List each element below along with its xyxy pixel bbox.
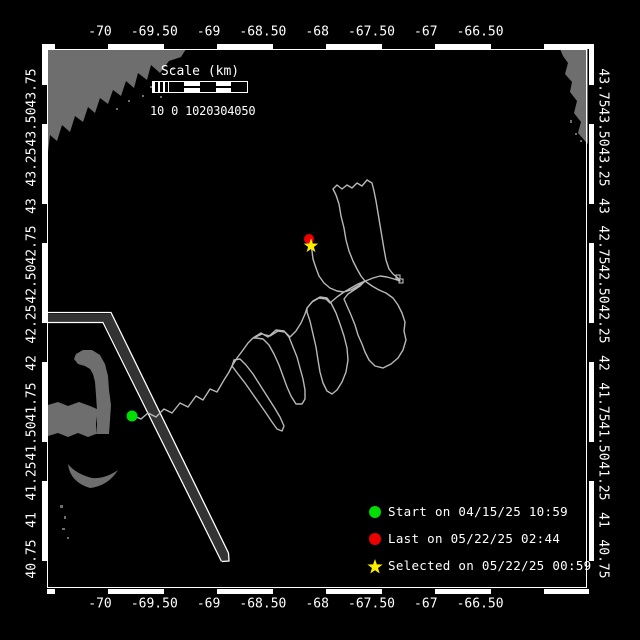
lat-tick-label-left: 43.75 <box>25 68 40 107</box>
legend-label-start: Start on 04/15/25 10:59 <box>388 504 568 519</box>
lon-tick-label-top: -68.50 <box>239 25 286 40</box>
lat-tick-label-right: 43.50 <box>596 108 611 147</box>
lat-tick-label-right: 41.50 <box>596 422 611 461</box>
lon-tick-label-top: -66.50 <box>457 25 504 40</box>
lat-tick-label-right: 43.25 <box>596 147 611 186</box>
lon-tick-label-top: -69.50 <box>131 25 178 40</box>
legend-label-last: Last on 05/22/25 02:44 <box>388 531 560 546</box>
lon-tick-label-bottom: -69.50 <box>131 597 178 612</box>
lat-tick-label-left: 41.25 <box>25 461 40 500</box>
lat-tick-label-right: 42.75 <box>596 226 611 265</box>
lat-tick-label-right: 43 <box>596 198 611 214</box>
legend-row-start: Start on 04/15/25 10:59 <box>362 498 591 525</box>
lat-tick-label-left: 41.75 <box>25 383 40 422</box>
scale-bar <box>152 81 248 93</box>
lat-tick-label-right: 41.25 <box>596 461 611 500</box>
lon-tick-label-bottom: -67 <box>414 597 437 612</box>
lat-tick-label-left: 41.50 <box>25 422 40 461</box>
lat-tick-label-left: 43 <box>25 198 40 214</box>
lat-tick-label-right: 42.50 <box>596 265 611 304</box>
land-cape-cod-shoulder <box>48 402 97 437</box>
south-island-specks <box>60 505 69 539</box>
lat-tick-label-left: 41 <box>25 512 40 528</box>
land-nova-scotia <box>560 49 588 144</box>
lon-tick-label-top: -69 <box>197 25 220 40</box>
scale-segment-hatch <box>153 82 169 92</box>
last-legend-icon <box>362 532 388 546</box>
lon-tick-label-top: -67.50 <box>348 25 395 40</box>
lat-tick-label-right: 41.75 <box>596 383 611 422</box>
scale-segment <box>216 82 232 92</box>
lat-tick-label-right: 40.75 <box>596 540 611 579</box>
scale-segment <box>231 82 247 92</box>
lon-tick-label-bottom: -68 <box>305 597 328 612</box>
lat-tick-label-right: 42 <box>596 355 611 371</box>
scale-bar-ticks: 10 0 1020304050 <box>150 104 255 118</box>
legend-row-selected: Selected on 05/22/25 00:59 <box>362 552 591 579</box>
lat-tick-label-left: 42.75 <box>25 226 40 265</box>
scale-segment <box>169 82 185 92</box>
lat-tick-label-right: 41 <box>596 512 611 528</box>
track-legend: Start on 04/15/25 10:59 Last on 05/22/25… <box>362 498 591 579</box>
lat-tick-label-right: 42.25 <box>596 304 611 343</box>
legend-row-last: Last on 05/22/25 02:44 <box>362 525 591 552</box>
lat-tick-label-left: 42 <box>25 355 40 371</box>
lat-tick-label-left: 42.25 <box>25 304 40 343</box>
lon-tick-label-bottom: -69 <box>197 597 220 612</box>
glider-map-window: Scale (km) 10 0 1020304050 Start on 04/1… <box>0 0 640 640</box>
land-islands-crescent <box>68 464 118 488</box>
scale-bar-title: Scale (km) <box>152 64 248 79</box>
glider-track[interactable] <box>134 180 406 431</box>
last-position-marker[interactable] <box>304 234 314 244</box>
lat-tick-label-left: 40.75 <box>25 540 40 579</box>
legend-label-selected: Selected on 05/22/25 00:59 <box>388 558 591 573</box>
lat-tick-label-left: 43.25 <box>25 147 40 186</box>
shipping-lane <box>42 313 229 562</box>
lon-tick-label-bottom: -68.50 <box>239 597 286 612</box>
lon-tick-label-bottom: -67.50 <box>348 597 395 612</box>
start-legend-icon <box>362 505 388 519</box>
lon-tick-label-top: -68 <box>305 25 328 40</box>
lon-tick-label-top: -70 <box>88 25 111 40</box>
start-position-marker[interactable] <box>127 411 138 422</box>
scale-segment <box>184 82 200 92</box>
lat-tick-label-left: 42.50 <box>25 265 40 304</box>
lon-tick-label-bottom: -66.50 <box>457 597 504 612</box>
scale-segment <box>200 82 216 92</box>
selected-legend-star-icon <box>362 556 388 576</box>
lat-tick-label-right: 43.75 <box>596 68 611 107</box>
lon-tick-label-bottom: -70 <box>88 597 111 612</box>
lon-tick-label-top: -67 <box>414 25 437 40</box>
lat-tick-label-left: 43.50 <box>25 108 40 147</box>
